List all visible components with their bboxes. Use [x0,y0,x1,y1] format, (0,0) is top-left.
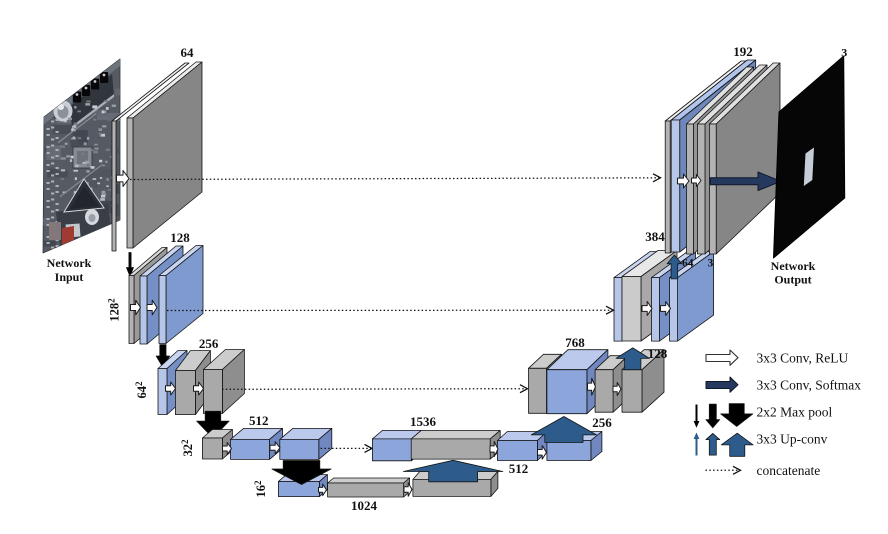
svg-text:64: 64 [682,257,694,269]
svg-text:Input: Input [55,270,84,284]
svg-text:3x3 Conv, ReLU: 3x3 Conv, ReLU [757,351,849,366]
svg-text:concatenate: concatenate [757,463,821,478]
svg-text:3x3 Up-conv: 3x3 Up-conv [757,432,828,447]
svg-text:3x3 Conv, Softmax: 3x3 Conv, Softmax [757,378,862,393]
svg-text:Output: Output [774,273,811,287]
svg-text:Network: Network [47,256,92,270]
svg-text:128: 128 [648,346,668,361]
svg-text:384: 384 [645,229,665,244]
svg-text:512: 512 [249,413,269,428]
svg-text:Network: Network [771,259,816,273]
svg-text:256: 256 [199,336,219,351]
svg-text:128: 128 [170,230,190,245]
svg-text:1536: 1536 [410,414,437,429]
svg-text:2x2 Max pool: 2x2 Max pool [757,405,833,420]
svg-text:768: 768 [565,335,585,350]
svg-text:512: 512 [509,461,529,476]
svg-text:3: 3 [708,257,714,269]
svg-text:3: 3 [841,46,847,60]
svg-text:1024: 1024 [351,498,378,513]
svg-text:192: 192 [733,44,753,59]
svg-text:64: 64 [181,45,195,60]
svg-text:256: 256 [592,415,612,430]
